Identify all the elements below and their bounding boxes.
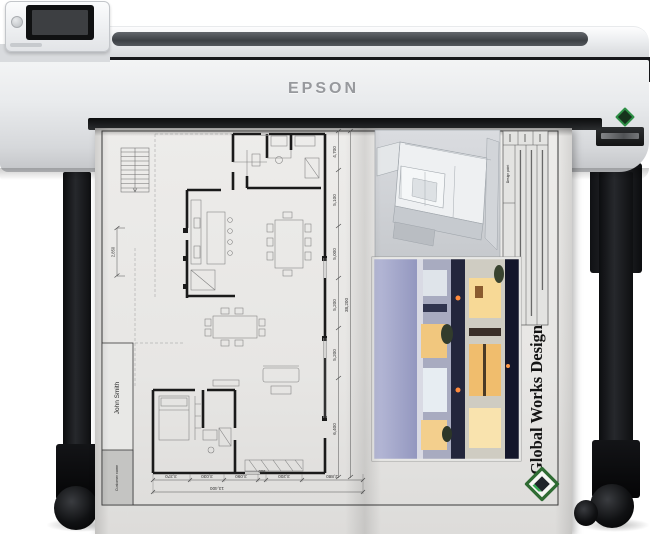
dimension-label: 2,850 (111, 246, 116, 257)
dimension-label: 5,100 (332, 194, 337, 206)
printer-product-photo: EPSON (0, 0, 650, 534)
dimension-label: 3,090 (235, 474, 247, 479)
dimension-label: 5,200 (332, 299, 337, 311)
home-button (11, 16, 23, 28)
panel-trim (10, 43, 42, 47)
dimension-label: 3,030 (201, 474, 213, 479)
dimension-total-label: 13,400 (210, 486, 224, 491)
render-3d (375, 130, 500, 260)
stand-leg-left (63, 172, 91, 482)
touchscreen (32, 10, 88, 35)
model-badge (596, 127, 644, 146)
dimension-label: 2,880 (326, 474, 338, 479)
paper-top-shade (95, 128, 572, 136)
caster-wheel-front-right (574, 500, 598, 526)
roll-cover-recess (112, 32, 588, 46)
stand-leg-right (599, 172, 633, 478)
dimension-label: 3,370 (165, 474, 177, 479)
paper-left-shade (95, 128, 109, 534)
customer-name: John Smith (114, 381, 121, 414)
paper-right-shade (555, 128, 572, 534)
dimension-label: 6,400 (332, 423, 337, 435)
dimension-label: 3,200 (278, 474, 290, 479)
company-name: Global Works Design (527, 325, 546, 475)
epson-logo: EPSON (288, 80, 359, 98)
caster-wheel-left (54, 486, 98, 530)
dimension-label: 900 (258, 469, 266, 474)
paper-crease (345, 128, 381, 534)
dimension-label: 5,200 (332, 349, 337, 361)
printed-sheet: 4,700 5,100 5,000 5,200 5,200 6,400 38,2… (95, 128, 572, 534)
dimension-label: 4,700 (332, 146, 337, 158)
dimension-label: 5,000 (332, 248, 337, 260)
house-photo (373, 258, 520, 460)
notes-column-header: Design point (506, 165, 510, 183)
customer-label: Customer name (115, 465, 119, 491)
